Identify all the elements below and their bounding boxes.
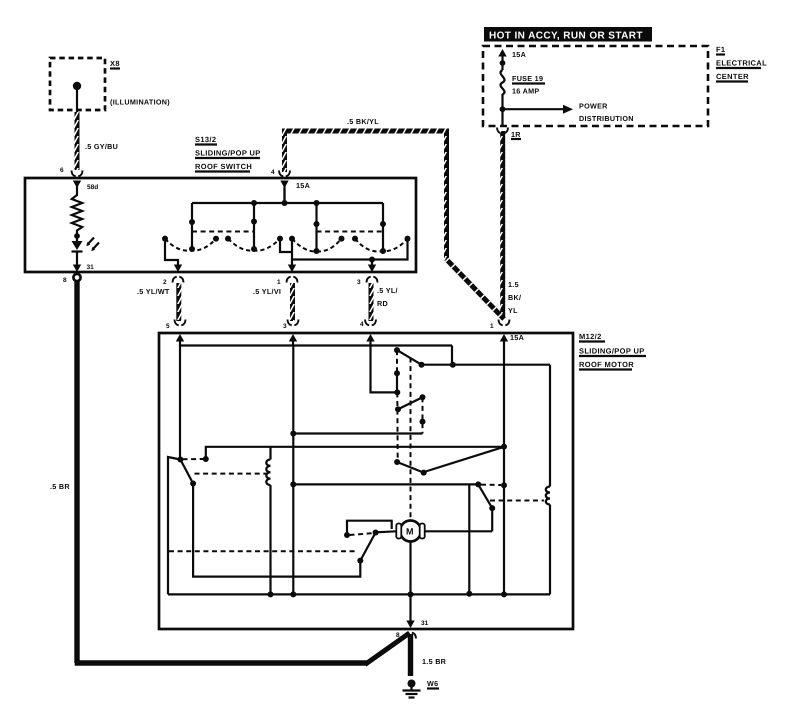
- svg-text:X8: X8: [110, 59, 120, 68]
- svg-text:.5 YL/VI: .5 YL/VI: [253, 287, 281, 296]
- svg-text:W6: W6: [427, 679, 438, 688]
- svg-text:.5 BK/YL: .5 BK/YL: [347, 117, 379, 126]
- svg-text:SLIDING/POP UP: SLIDING/POP UP: [579, 347, 645, 356]
- svg-text:F1: F1: [716, 45, 725, 54]
- svg-text:1: 1: [490, 323, 494, 330]
- svg-text:1.5: 1.5: [508, 280, 519, 289]
- svg-text:58d: 58d: [87, 184, 98, 191]
- svg-text:BK/: BK/: [508, 293, 521, 302]
- svg-text:ROOF MOTOR: ROOF MOTOR: [579, 360, 634, 369]
- svg-text:31: 31: [421, 620, 429, 627]
- svg-text:S13/2: S13/2: [195, 135, 216, 144]
- svg-text:1: 1: [277, 279, 281, 286]
- svg-text:M12/2: M12/2: [579, 332, 602, 341]
- svg-text:5: 5: [166, 323, 170, 330]
- svg-text:FUSE 19: FUSE 19: [512, 74, 543, 83]
- svg-text:6: 6: [60, 167, 64, 174]
- svg-text:SLIDING/POP UP: SLIDING/POP UP: [195, 149, 261, 158]
- svg-text:HOT IN ACCY, RUN OR START: HOT IN ACCY, RUN OR START: [489, 31, 643, 42]
- svg-text:15A: 15A: [512, 50, 526, 59]
- svg-text:ELECTRICAL: ELECTRICAL: [716, 59, 767, 68]
- svg-text:1.5 BR: 1.5 BR: [422, 657, 447, 666]
- svg-text:RD: RD: [377, 299, 388, 308]
- svg-text:.5 YL/: .5 YL/: [377, 286, 398, 295]
- svg-text:.5 BR: .5 BR: [50, 482, 70, 491]
- svg-text:3: 3: [283, 323, 287, 330]
- svg-text:.5 YL/WT: .5 YL/WT: [137, 287, 170, 296]
- svg-text:4: 4: [360, 321, 364, 328]
- svg-text:.5 GY/BU: .5 GY/BU: [85, 142, 118, 151]
- svg-text:POWER: POWER: [579, 102, 608, 111]
- svg-text:YL: YL: [508, 306, 518, 315]
- svg-text:ROOF SWITCH: ROOF SWITCH: [195, 162, 252, 171]
- svg-text:16 AMP: 16 AMP: [512, 87, 540, 96]
- svg-text:3: 3: [357, 279, 361, 286]
- svg-text:31: 31: [87, 264, 95, 271]
- svg-text:DISTRIBUTION: DISTRIBUTION: [579, 114, 634, 123]
- svg-text:15A: 15A: [296, 181, 310, 190]
- svg-text:8: 8: [63, 277, 67, 284]
- svg-text:M: M: [406, 527, 414, 537]
- svg-text:4: 4: [271, 169, 275, 176]
- svg-text:(ILLUMINATION): (ILLUMINATION): [110, 98, 170, 107]
- svg-text:2: 2: [163, 279, 167, 286]
- svg-text:1R: 1R: [511, 130, 521, 139]
- svg-text:CENTER: CENTER: [716, 72, 749, 81]
